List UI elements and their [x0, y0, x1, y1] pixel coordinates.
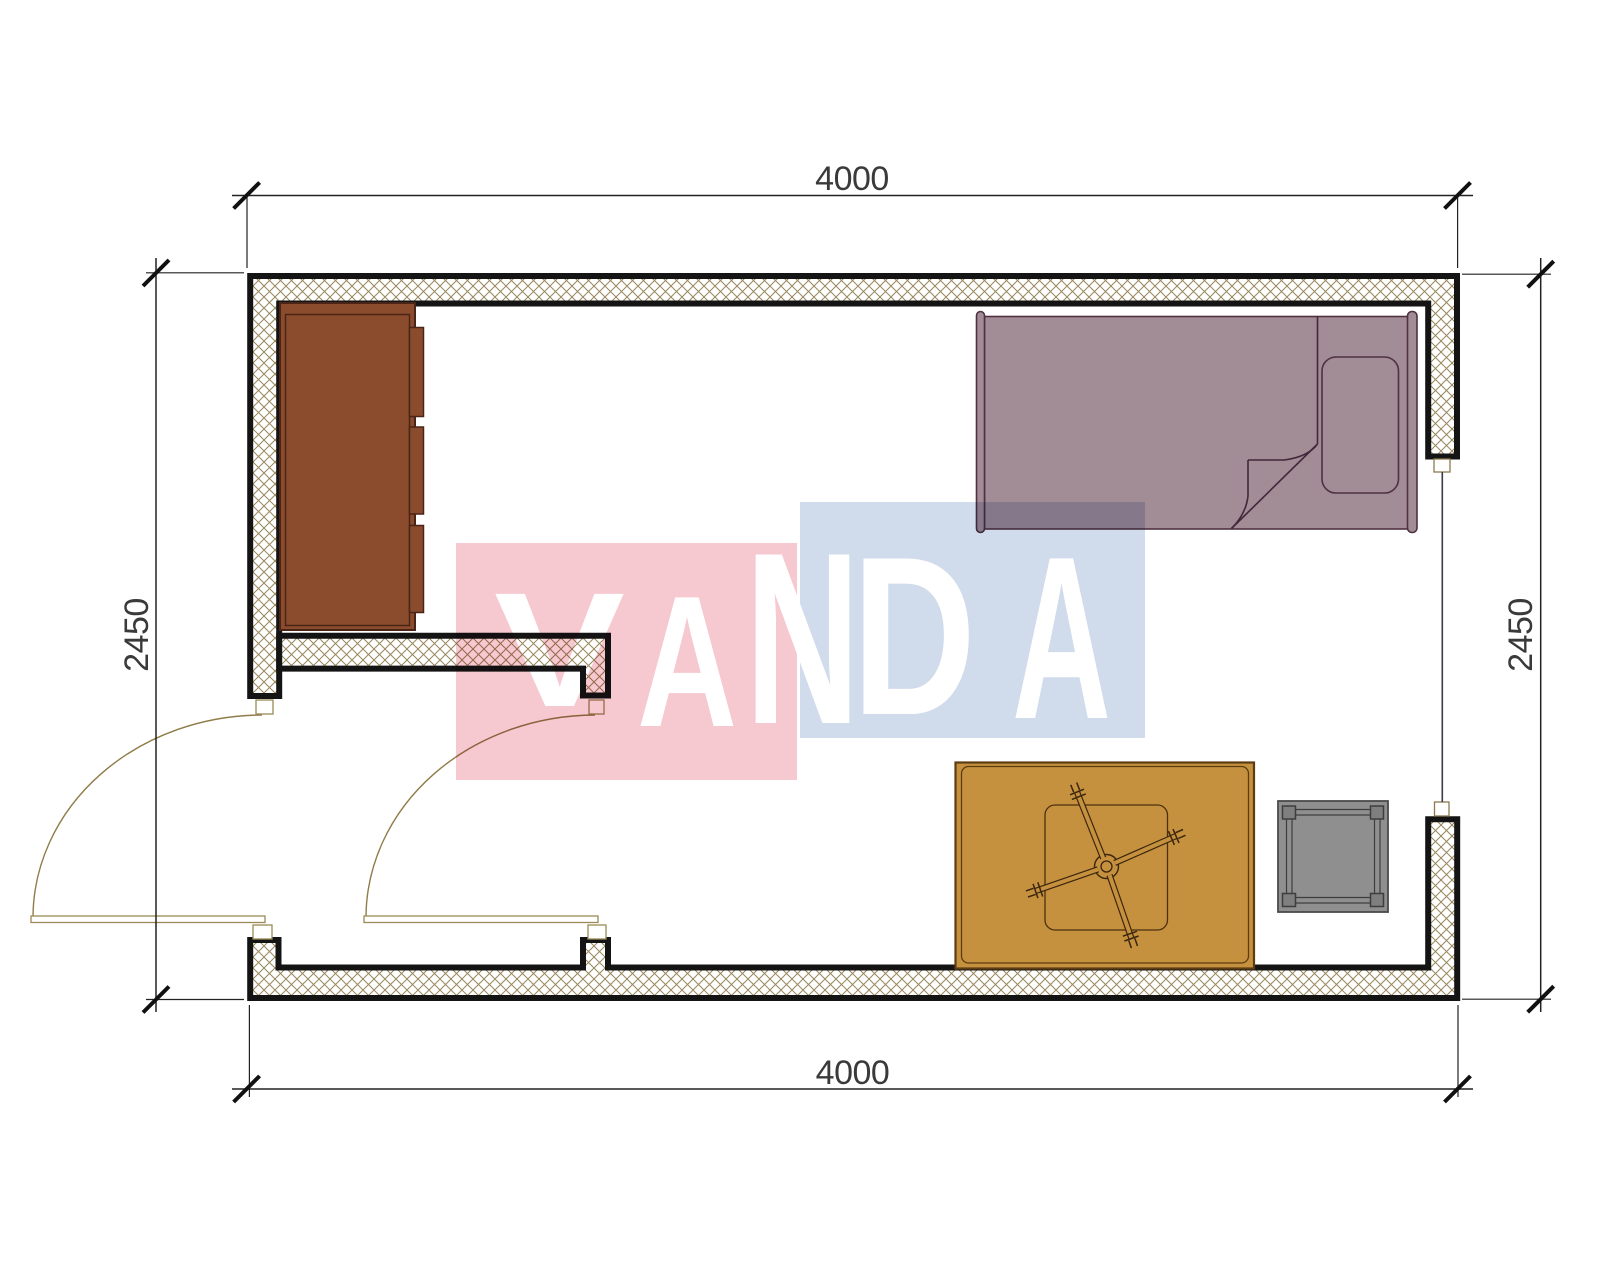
svg-text:2450: 2450 [1502, 598, 1540, 672]
svg-text:2450: 2450 [118, 598, 156, 672]
svg-text:4000: 4000 [815, 160, 889, 198]
svg-text:4000: 4000 [816, 1054, 890, 1092]
